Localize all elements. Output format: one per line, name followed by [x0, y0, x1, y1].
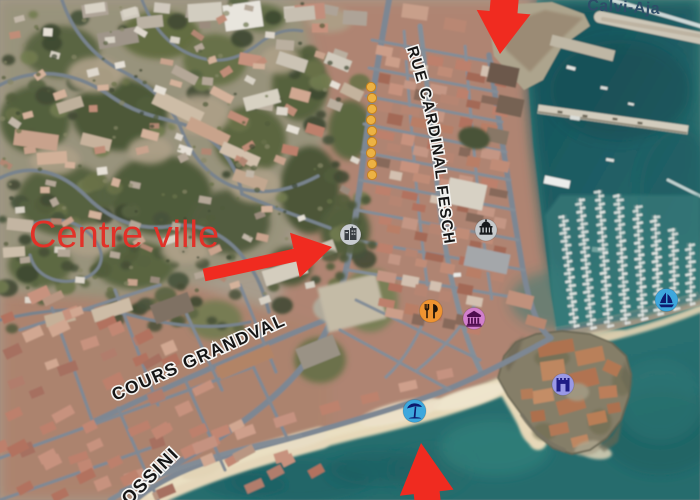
- svg-text:Centre ville: Centre ville: [29, 214, 219, 256]
